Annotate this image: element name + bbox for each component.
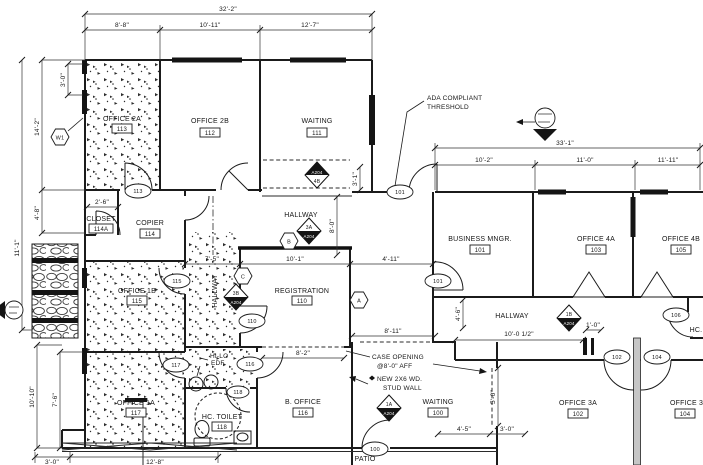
door-tag-102: 102	[612, 355, 622, 361]
room-number-113: 113	[117, 127, 128, 133]
room-number-116: 116	[298, 411, 309, 417]
elevation-marker-1b: 1B A204	[557, 305, 581, 331]
floor-plan-drawing: 32'-2" 8'-8" 10'-11" 12'-7" 33'-1" 10'-2…	[0, 0, 703, 465]
door-tag-101-int: 101	[433, 279, 443, 285]
room-number-110: 110	[297, 299, 308, 305]
room-label-office-4b: OFFICE 4B	[662, 236, 700, 243]
dim-v-8-0: 8'-0"	[329, 219, 336, 233]
elevation-marker-3a: 3A A204	[297, 218, 321, 244]
room-label-waiting-100: WAITING	[422, 399, 453, 406]
section-marker-left	[0, 301, 23, 319]
dim-mid-3: 4'-11"	[382, 256, 400, 263]
floor-plan-sheet: 32'-2" 8'-8" 10'-11" 12'-7" 33'-1" 10'-2…	[0, 0, 703, 465]
dim-closet: 2'-6"	[95, 199, 109, 206]
note-stud-line2: STUD WALL	[383, 385, 422, 392]
door-tag-101-ext: 101	[395, 190, 405, 196]
svg-text:A204: A204	[383, 411, 394, 416]
door-tag-106: 106	[671, 313, 681, 319]
window-office2b	[172, 58, 242, 63]
dim-v-4-6: 4'-6"	[455, 307, 462, 321]
dim-top-2: 10'-11"	[199, 22, 221, 29]
room-number-102: 102	[573, 412, 584, 418]
dim-v-3-1: 3'-1"	[352, 172, 359, 186]
svg-text:4B: 4B	[314, 179, 321, 185]
toilet-tank-icon	[194, 438, 210, 446]
room-number-101: 101	[475, 248, 486, 254]
note-case-line1: CASE OPENING	[372, 354, 424, 361]
dim-b-office: 8'-2"	[296, 350, 310, 357]
note-ada-leader	[395, 101, 424, 186]
note-ada-line1: ADA COMPLIANT	[427, 95, 482, 102]
room-label-office-3b: OFFICE 3B	[670, 400, 703, 407]
dim-top-total: 32'-2"	[219, 6, 237, 13]
dim-hall-2: 1'-0"	[586, 322, 600, 329]
dim-bot-1: 3'-0"	[45, 459, 59, 465]
door-tag-113: 113	[133, 189, 142, 195]
room-label-office-2b: OFFICE 2B	[191, 118, 229, 125]
room-label-business-mngr: BUSINESS MNGR.	[448, 236, 511, 243]
dim-left-1: 3'-0"	[60, 73, 67, 87]
door-tag-100: 100	[370, 447, 380, 453]
window-tag-w1: W1	[56, 136, 65, 142]
door-tag-115: 115	[172, 279, 181, 285]
dim-case: 8'-11"	[384, 328, 402, 335]
room-label-office-4a: OFFICE 4A	[577, 236, 615, 243]
wall-poche	[634, 338, 641, 465]
dim-mid-1: 7'-5"	[205, 256, 219, 263]
window-waiting	[290, 58, 346, 63]
svg-text:3A: 3A	[306, 225, 313, 231]
dim-left-5: 10'-10"	[29, 386, 36, 408]
dim-bot-2: 12'-8"	[146, 459, 164, 465]
note-case-line2: @8'-0" AFF	[377, 363, 412, 370]
dim-top-3: 12'-7"	[301, 22, 319, 29]
room-label-waiting-111: WAITING	[301, 118, 332, 125]
room-label-office-2a: OFFICE 2A	[103, 116, 141, 123]
ref-tag-c: C	[241, 275, 245, 281]
door-tag-117: 117	[171, 363, 180, 369]
window-office4b	[640, 190, 668, 195]
room-label-hc-partial: HC.	[690, 327, 703, 334]
note-hilo-line2: EDF	[211, 360, 225, 367]
ref-tag-a: A	[357, 299, 361, 305]
stone-veneer-wall	[32, 244, 78, 338]
svg-text:3B: 3B	[233, 291, 240, 297]
room-number-117: 117	[131, 411, 142, 417]
dim-right-3: 11'-11"	[658, 157, 679, 164]
note-stud-line1: NEW 2X6 WD.	[377, 376, 422, 383]
door-tag-104: 104	[652, 355, 662, 361]
room-number-103: 103	[591, 248, 602, 254]
elevation-marker-4b: A204 4B	[305, 162, 329, 188]
dim-hall-1: 10'-0 1/2"	[504, 331, 534, 338]
room-number-100: 100	[433, 411, 444, 417]
svg-text:A204: A204	[311, 170, 322, 175]
room-number-111: 111	[312, 131, 322, 137]
room-number-114a: 114A	[94, 227, 108, 233]
svg-text:1B: 1B	[566, 312, 573, 318]
bullet-diamond-icon	[369, 376, 375, 381]
note-stud-leader	[356, 379, 368, 384]
door-tag-116: 116	[245, 362, 254, 368]
svg-text:A204: A204	[563, 321, 574, 326]
room-label-office-3a: OFFICE 3A	[559, 400, 597, 407]
svg-text:A204: A204	[303, 234, 314, 239]
door-office4b	[641, 272, 673, 297]
section-marker-top-right	[516, 108, 557, 141]
note-hilo-line1: HI-LO	[210, 353, 228, 360]
room-label-hallway-vert: HALLWAY	[212, 274, 219, 308]
dim-wait-1: 4'-5"	[457, 426, 471, 433]
door-tag-118: 118	[233, 390, 242, 396]
dim-right-total: 33'-1"	[556, 140, 574, 147]
room-label-b-office: B. OFFICE	[285, 399, 321, 406]
room-number-105: 105	[676, 248, 687, 254]
note-ada-line2: THRESHOLD	[427, 104, 469, 111]
room-number-112: 112	[205, 131, 216, 137]
dim-right-2: 11'-0"	[576, 157, 594, 164]
dim-mid-2: 10'-1"	[286, 256, 304, 263]
svg-text:1A: 1A	[386, 402, 393, 408]
dim-left-4: 11'-1"	[14, 239, 21, 257]
room-label-hallway-top: HALLWAY	[284, 212, 318, 219]
dim-right-1: 10'-2"	[475, 157, 493, 164]
dim-wait-2: 3'-0"	[500, 426, 514, 433]
room-label-hallway-right: HALLWAY	[495, 313, 529, 320]
room-label-registration: REGISTRATION	[275, 288, 329, 295]
door-tag-110: 110	[247, 319, 256, 325]
elevation-marker-1a: 1A A204	[377, 395, 401, 421]
svg-text:A204: A204	[230, 300, 241, 305]
room-label-hc-toilet: HC. TOILET	[202, 414, 243, 421]
toilet-icon	[195, 421, 209, 438]
dim-left-6: 7'-6"	[52, 393, 59, 407]
room-number-115: 115	[132, 299, 143, 305]
room-label-closet: CLOSET	[86, 216, 116, 223]
window-office4a	[538, 190, 566, 195]
room-number-114: 114	[145, 232, 156, 238]
room-label-office-1a: OFFICE 1A	[117, 400, 155, 407]
room-label-patio: PATIO	[355, 456, 376, 463]
dim-top-1: 8'-8"	[115, 22, 129, 29]
ref-tag-b: B	[287, 240, 291, 246]
door-office4a	[573, 272, 605, 297]
dim-left-3: 4'-8"	[34, 206, 41, 220]
room-number-118: 118	[217, 425, 228, 431]
dim-v-5-0: 5'-0"	[490, 390, 497, 404]
room-number-104: 104	[680, 412, 691, 418]
room-label-office-1b: OFFICE 1B	[118, 288, 156, 295]
dim-left-2: 14'-2"	[34, 118, 41, 136]
room-label-copier: COPIER	[136, 220, 164, 227]
